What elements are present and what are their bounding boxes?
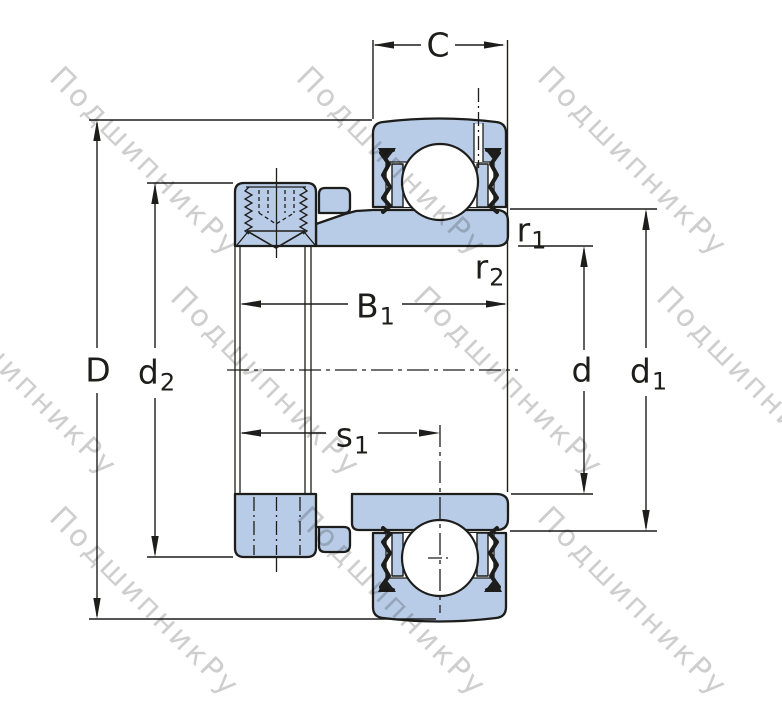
dim-arrow-s1-right bbox=[419, 429, 440, 436]
dim-label-r2: r2 bbox=[475, 251, 504, 284]
bearing-drawing-canvas: C B1 s1 D d2 d d1 r1 r2 ПодшипникРу Подш… bbox=[0, 0, 782, 704]
dim-label-s1: s1 bbox=[336, 419, 368, 452]
dim-arrow-d-top bbox=[580, 246, 587, 267]
dim-arrow-d1-top bbox=[642, 209, 649, 230]
dim-label-d2: d2 bbox=[138, 356, 174, 389]
dim-label-d1: d1 bbox=[630, 355, 666, 388]
dim-arrow-C-left bbox=[373, 41, 394, 48]
dim-arrow-d2-bottom bbox=[151, 536, 158, 557]
dim-label-d: d bbox=[572, 354, 593, 387]
dim-arrow-B1-right bbox=[486, 300, 507, 307]
locking-collar-bottom bbox=[235, 494, 316, 557]
dim-arrow-B1-left bbox=[240, 300, 261, 307]
collar-recess-top bbox=[319, 188, 350, 213]
dim-label-B1: B1 bbox=[356, 290, 394, 323]
ball-top bbox=[402, 144, 478, 220]
dim-label-D: D bbox=[85, 354, 110, 387]
dim-arrow-d-bottom bbox=[580, 473, 587, 494]
inner-ring-sleeve-top bbox=[316, 210, 508, 246]
dim-label-C: C bbox=[426, 29, 449, 62]
dim-arrow-s1-left bbox=[240, 429, 261, 436]
dim-arrow-d2-top bbox=[151, 183, 158, 204]
dim-arrow-D-bottom bbox=[93, 598, 100, 619]
collar-recess-bottom bbox=[316, 527, 350, 552]
dim-arrow-D-top bbox=[93, 120, 100, 141]
bearing-diagram bbox=[0, 0, 782, 704]
dim-label-r1: r1 bbox=[517, 214, 546, 247]
dim-arrow-d1-bottom bbox=[642, 510, 649, 531]
dim-arrow-C-right bbox=[484, 41, 505, 48]
